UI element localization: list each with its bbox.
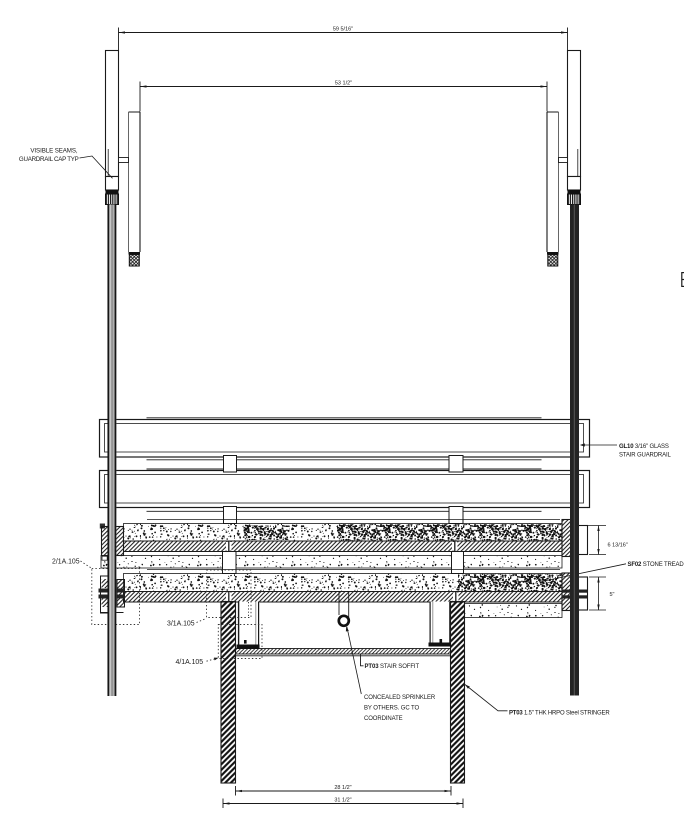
svg-text:SF02 STONE TREAD: SF02 STONE TREAD <box>628 562 684 568</box>
svg-text:GL10 3/16" GLASS: GL10 3/16" GLASS <box>619 444 669 450</box>
svg-text:5": 5" <box>610 592 615 598</box>
svg-text:4/1A.105: 4/1A.105 <box>176 659 204 666</box>
svg-text:31 1/2": 31 1/2" <box>334 798 351 804</box>
svg-text:PT03 STAIR SOFFIT: PT03 STAIR SOFFIT <box>365 664 420 670</box>
svg-text:CONCEALED SPRINKLER: CONCEALED SPRINKLER <box>364 695 436 701</box>
svg-text:VISIBLE SEAMS,: VISIBLE SEAMS, <box>30 148 77 155</box>
svg-text:GUARDRAIL CAP TYP: GUARDRAIL CAP TYP <box>19 156 79 163</box>
svg-text:59 5/16": 59 5/16" <box>333 27 353 33</box>
svg-text:3/1A.105: 3/1A.105 <box>167 621 195 628</box>
svg-text:COORDINATE: COORDINATE <box>364 716 403 722</box>
svg-text:BY OTHERS. GC TO: BY OTHERS. GC TO <box>364 706 420 712</box>
svg-text:2/1A.105: 2/1A.105 <box>52 559 80 566</box>
svg-text:28 1/2": 28 1/2" <box>334 785 351 791</box>
svg-text:STAIR GUARDRAIL: STAIR GUARDRAIL <box>619 452 671 458</box>
svg-text:PT03 1.5" THK HRPO Steel STRIN: PT03 1.5" THK HRPO Steel STRINGER <box>509 711 610 717</box>
svg-text:53 1/2": 53 1/2" <box>335 81 352 87</box>
svg-text:6 13/16": 6 13/16" <box>608 542 628 548</box>
